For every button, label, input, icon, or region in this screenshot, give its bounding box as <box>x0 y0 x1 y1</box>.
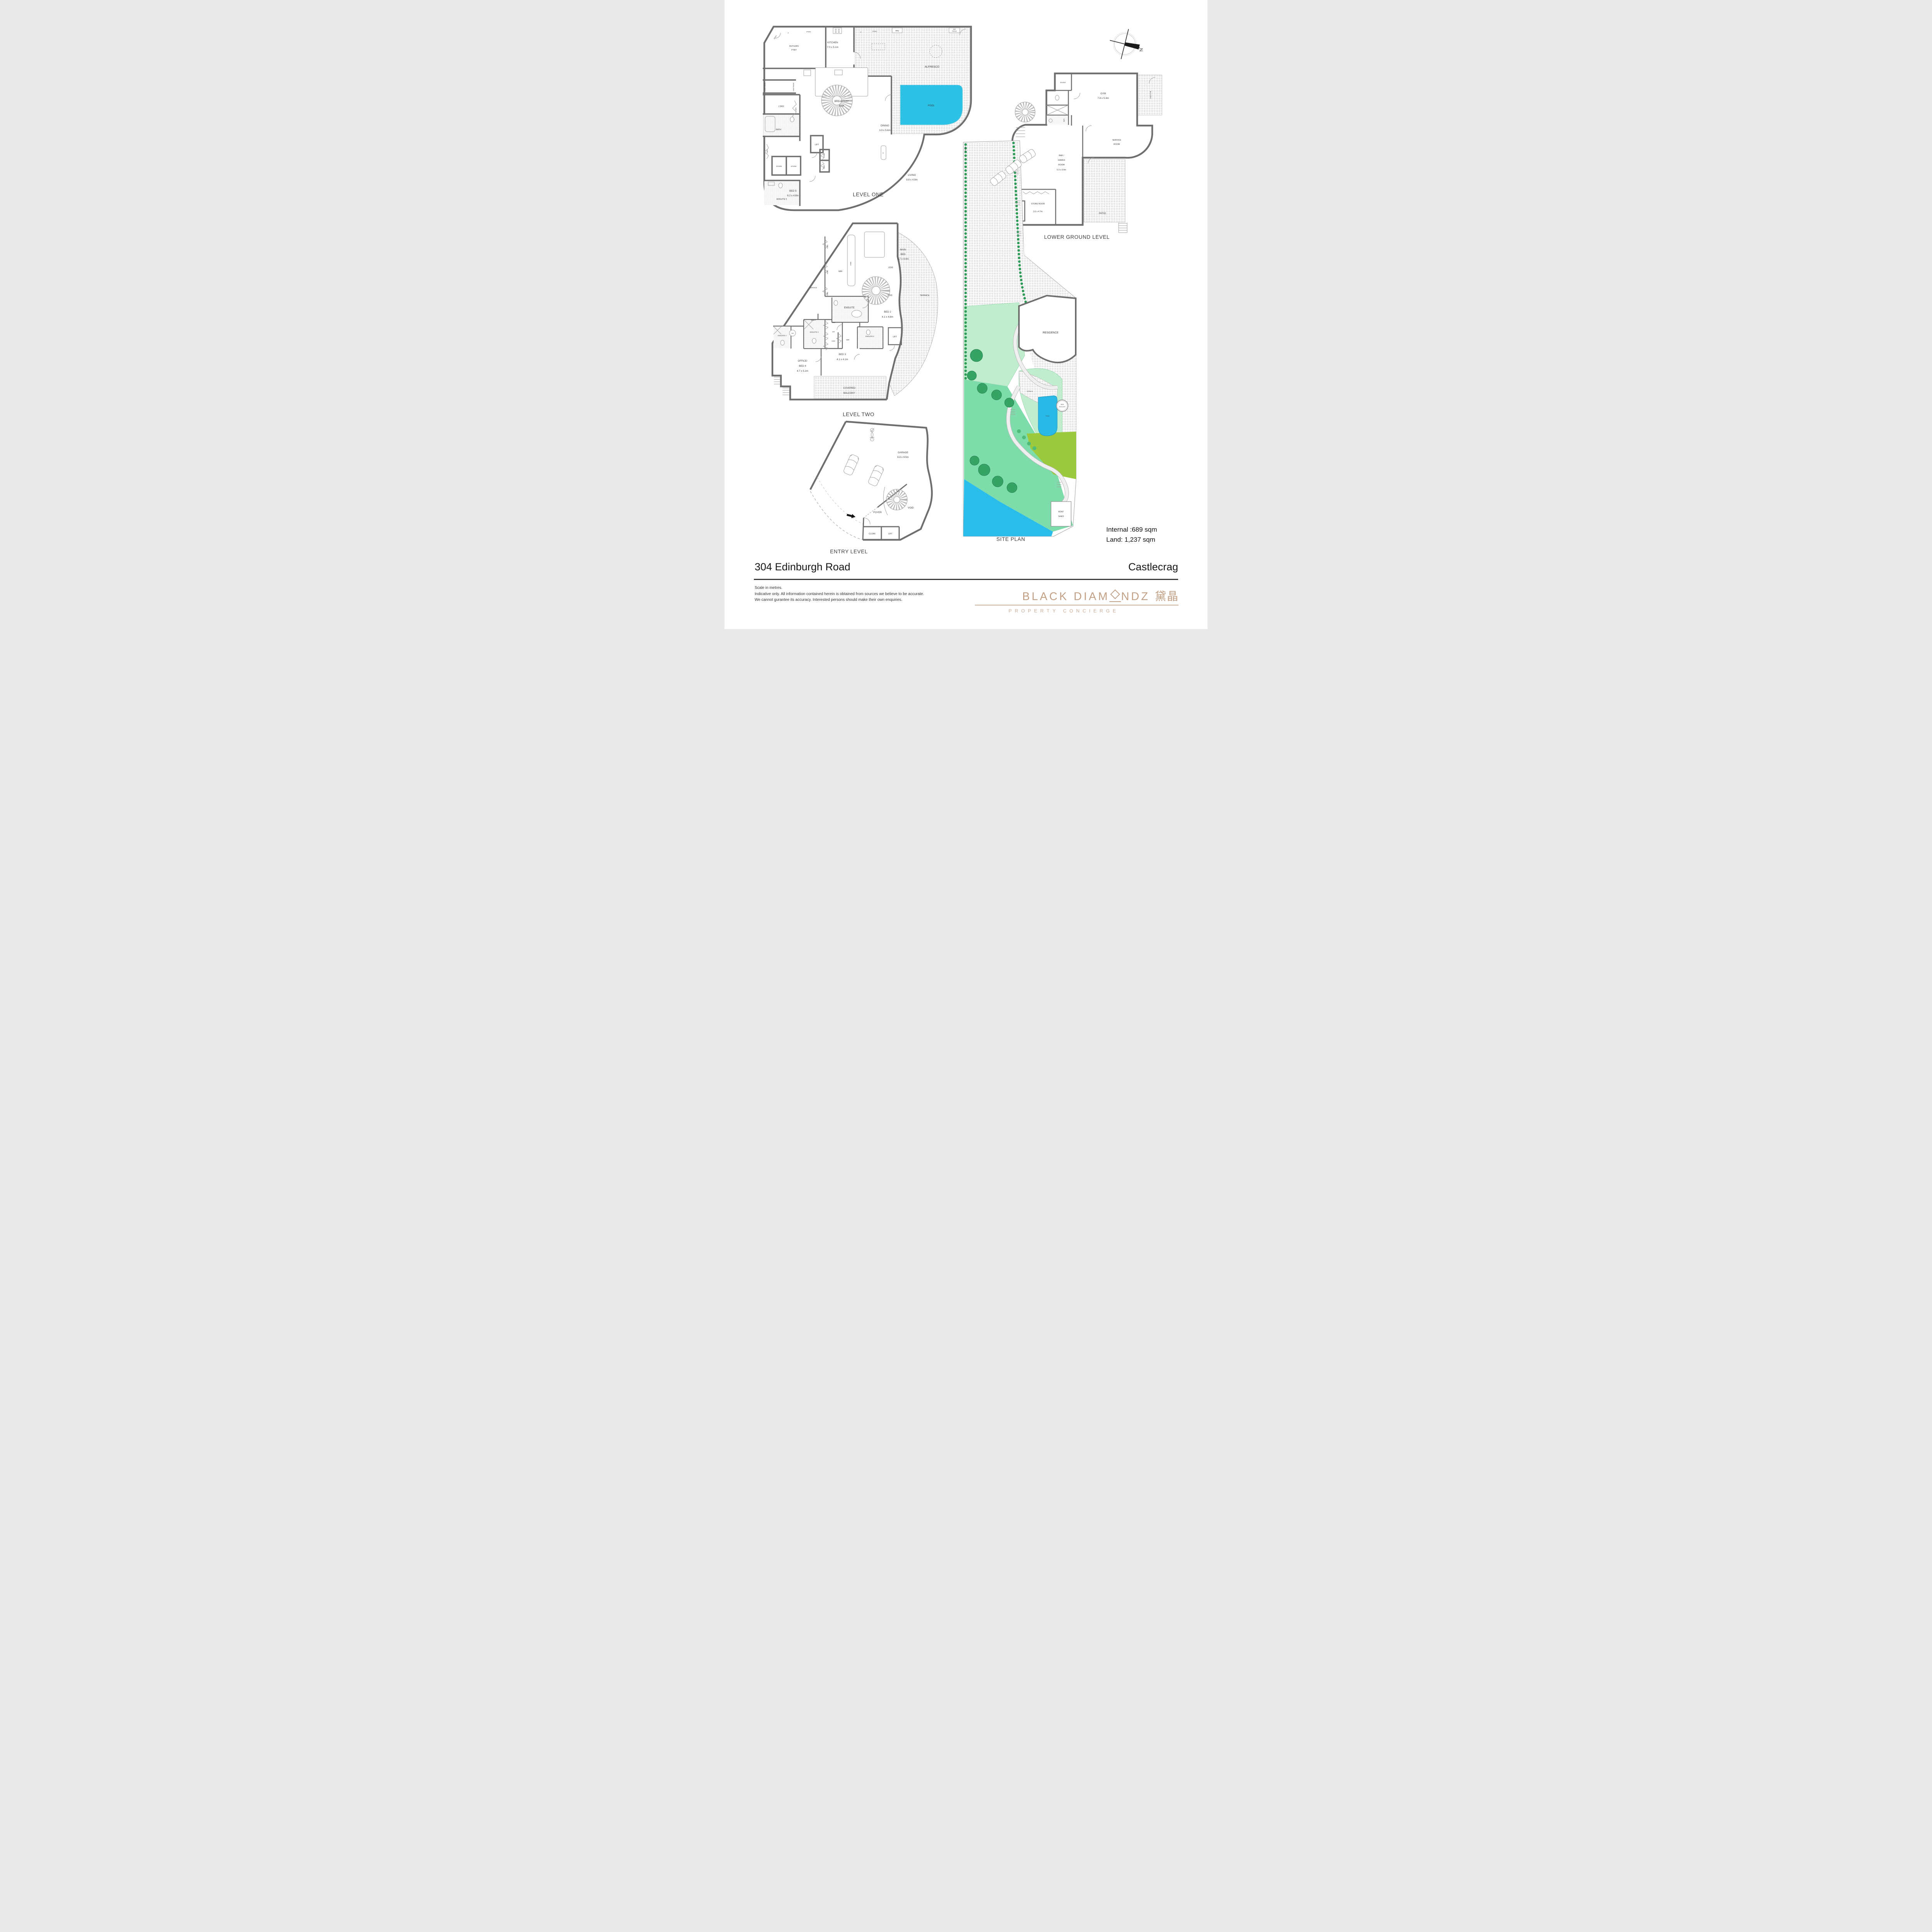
garage-cars <box>843 454 884 486</box>
room-dims: 9.8 x 4.9m <box>906 179 917 181</box>
room-label: TV <box>883 152 884 154</box>
room-label: COVERED <box>843 387 855 389</box>
room-label: CLOAK <box>869 533 876 535</box>
level-one-floorplan: PTRY F PTRY F PTRY BBQ BAR FRIDGE BUTLER… <box>757 21 980 214</box>
room-label: SAUNA <box>1060 82 1066 83</box>
room-label: PATIO <box>1099 212 1106 215</box>
room-dims: 6.8 x 9.5m <box>897 456 908 459</box>
toilet-icon <box>1055 95 1059 100</box>
level-two-floorplan: MAIN BED 5.7 x 4.4m ROBE ROBE ROBE ROBE … <box>767 221 947 416</box>
room-label: STORE <box>776 165 782 167</box>
area-figures: Internal :689 sqm Land: 1,237 sqm <box>1106 525 1157 545</box>
room-dims: 4.7 x 5.2m <box>797 370 808 372</box>
toilet-icon <box>866 330 870 335</box>
room-label: LIVING <box>908 174 916 177</box>
room-label: LIFT <box>888 533 893 535</box>
ensuite2-tiles <box>858 327 883 348</box>
room-label: BATH <box>776 129 781 131</box>
wardrobe-island <box>847 235 855 286</box>
entry-level-floorplan: GARAGE 6.8 x 9.5m FOYER VOID CLOAK LIFT <box>806 419 933 543</box>
room-dims: 3.9 x 5.6m <box>879 129 890 132</box>
room-label: SERVICE <box>810 287 817 289</box>
room-label: ROBE <box>823 153 825 157</box>
room-label: FOYER <box>873 511 882 514</box>
site-label: NEW <box>1061 404 1064 405</box>
site-label: BOAT <box>1058 511 1064 513</box>
room-label: F <box>788 32 789 34</box>
room-label: ALFRESCO <box>925 66 939 68</box>
room-label: STORE <box>791 165 797 167</box>
butlers-appliance <box>804 70 811 76</box>
room-label: OFFICE/ <box>798 360 808 362</box>
patio-steps <box>1119 223 1127 233</box>
room-label: DINING <box>881 124 889 127</box>
toilet-icon <box>779 183 782 188</box>
bed-icon <box>864 232 884 257</box>
site-label: TERRACE <box>1027 391 1033 392</box>
room-label: ROBE <box>823 165 825 168</box>
room-label: VOID <box>888 267 893 269</box>
room-dims: 6.2 x 4.8m <box>787 194 798 197</box>
room-dims: 4.1 x 4.1m <box>837 358 848 361</box>
room-label: BED <box>901 253 906 256</box>
divider-rule <box>754 579 1178 580</box>
ensuite-tiles <box>832 298 868 322</box>
floorplan-sheet: PTRY F PTRY F PTRY BBQ BAR FRIDGE BUTLER… <box>724 0 1207 629</box>
room-label: LINEN <box>795 107 797 111</box>
room-label: PTRY <box>806 31 811 33</box>
site-label: RESIDENCE <box>1043 332 1059 334</box>
brand-name-suffix: NDZ <box>1121 590 1150 603</box>
room-label: BAR <box>839 105 844 107</box>
room-label: BED 4 <box>799 365 806 367</box>
brand-tagline: PROPERTY CONCIERGE <box>975 608 1153 614</box>
brand-chinese: 黛晶 <box>1155 590 1179 603</box>
room-label: VOID <box>908 507 914 509</box>
room-label: WIR <box>832 331 835 333</box>
room-label: BALCONY <box>1150 91 1151 99</box>
interior-walls <box>863 484 907 540</box>
room-label: BAR <box>953 29 956 30</box>
room-label: BALCONY <box>844 392 855 395</box>
room-label: KITCHEN <box>827 41 838 44</box>
room-label: ENSUITE <box>844 306 854 309</box>
room-label: PTRY <box>872 31 877 32</box>
room-label: POOL <box>928 104 935 107</box>
room-label: WIR <box>846 339 849 341</box>
disclaimer: Scale in metres. Indicative only. All in… <box>755 585 971 603</box>
room-dims: 7.8 x 5.4m <box>1097 97 1109 100</box>
room-label: VOID <box>888 294 893 297</box>
room-label: LINEN <box>767 149 768 153</box>
room-label: BED 3 <box>839 353 846 356</box>
room-label: ENSUITE 2 <box>866 335 874 337</box>
driveway-dashed <box>810 491 863 540</box>
driveway-dashed <box>817 477 864 524</box>
room-label: ROBE <box>827 291 828 295</box>
room-label: F <box>861 31 862 33</box>
property-suburb: Castlecrag <box>1128 561 1178 573</box>
site-label: SERVICE <box>965 146 966 152</box>
room-label: ROBE <box>832 340 835 342</box>
new-skylight <box>1056 400 1068 412</box>
room-label: PTRY <box>773 35 777 39</box>
toilet-icon <box>790 117 794 122</box>
entry-arrow-icon <box>846 513 856 519</box>
room-label: LIFT <box>815 144 819 146</box>
site-plan-caption: SITE PLAN <box>972 536 1049 542</box>
room-label: GARAGE <box>898 451 908 454</box>
room-label: FRIDGE <box>952 31 957 32</box>
kitchen-island <box>815 68 868 96</box>
north-label: N <box>1138 48 1144 52</box>
room-label: ENSUITE 5 <box>777 198 787 201</box>
room-label: SERVICE <box>1112 139 1121 141</box>
room-label: BED 2 <box>884 311 891 313</box>
brand-name-prefix: BLACK DIAM <box>1022 590 1110 603</box>
room-label: ROBE <box>850 261 852 265</box>
room-label: HW <box>791 333 794 334</box>
level-two-caption: LEVEL TWO <box>820 412 897 417</box>
room-dims: 5.7 x 4.4m <box>897 258 908 260</box>
room-label: LIFT <box>893 336 897 338</box>
compass-icon: N <box>1107 26 1146 65</box>
room-label: WIR <box>838 270 842 273</box>
room-label: ENSUITE 4 <box>778 335 787 337</box>
room-label: BREAKFAST <box>834 100 849 103</box>
diamond-o-icon <box>1109 591 1121 602</box>
room-label: PTRY <box>791 49 797 51</box>
toilet-icon <box>781 340 784 345</box>
north-arrow <box>1124 41 1140 49</box>
level-one-caption: LEVEL ONE <box>830 192 907 197</box>
room-label: BED 5 <box>789 190 797 192</box>
disclaimer-line: Indicative only. All information contain… <box>755 591 971 597</box>
room-label: WINE FRIDGE <box>793 82 794 91</box>
bathtub-icon <box>852 310 862 317</box>
site-label: POOL <box>1046 415 1049 417</box>
ensuite3-tiles <box>804 320 825 348</box>
room-dims: 7.0 x 5.1m <box>827 46 838 49</box>
cooktop <box>833 28 842 34</box>
spiral-stair-icon <box>886 489 907 510</box>
disclaimer-line: We cannot gurantee its accuracy. Interes… <box>755 597 971 603</box>
shower-x <box>1046 105 1068 115</box>
room-label: BUTLERS <box>789 45 799 48</box>
room-label: ROBE <box>832 322 835 323</box>
door-arcs <box>864 518 870 524</box>
room-label: ROBE <box>827 244 828 248</box>
room-label: GYM <box>1100 92 1106 95</box>
site-plan: SERVICE RESIDENCE TERRACE NEW SKYLIGHT P… <box>961 139 1079 539</box>
room-label: BATH <box>1063 118 1065 122</box>
room-label: BENCH <box>811 320 816 321</box>
room-label: MAIN <box>900 248 906 251</box>
boat-shed <box>1051 502 1071 526</box>
terrace-paving <box>889 233 938 396</box>
spiral-stair-icon <box>862 277 890 304</box>
toilet-icon <box>812 338 816 344</box>
room-label: WINE FRIDGE <box>764 82 766 91</box>
disclaimer-line: Scale in metres. <box>755 585 971 591</box>
room-label: ROOM <box>1114 143 1120 146</box>
room-label: TERRACE <box>920 294 930 297</box>
site-label: SHED <box>1058 515 1064 518</box>
site-label: SKYLIGHT <box>1059 406 1066 408</box>
property-address: 304 Edinburgh Road <box>755 561 850 573</box>
room-label: L'DRY <box>779 105 784 108</box>
room-dims: 4.1 x 4.8m <box>882 316 893 318</box>
toilet-icon <box>834 301 838 306</box>
brand-underline <box>975 605 1179 605</box>
room-label: ROBE <box>827 270 828 274</box>
internal-area: Internal :689 sqm <box>1106 525 1157 535</box>
brand-logo: BLACK DIAMNDZ 黛晶 <box>1022 587 1179 604</box>
room-label: ENSUITE 3 <box>810 331 819 333</box>
motorcycle-icon <box>870 429 874 441</box>
room-label: BBQ <box>895 30 899 32</box>
entry-level-caption: ENTRY LEVEL <box>810 549 888 554</box>
land-area: Land: 1,237 sqm <box>1106 535 1157 545</box>
spiral-stair-icon <box>1015 102 1035 122</box>
